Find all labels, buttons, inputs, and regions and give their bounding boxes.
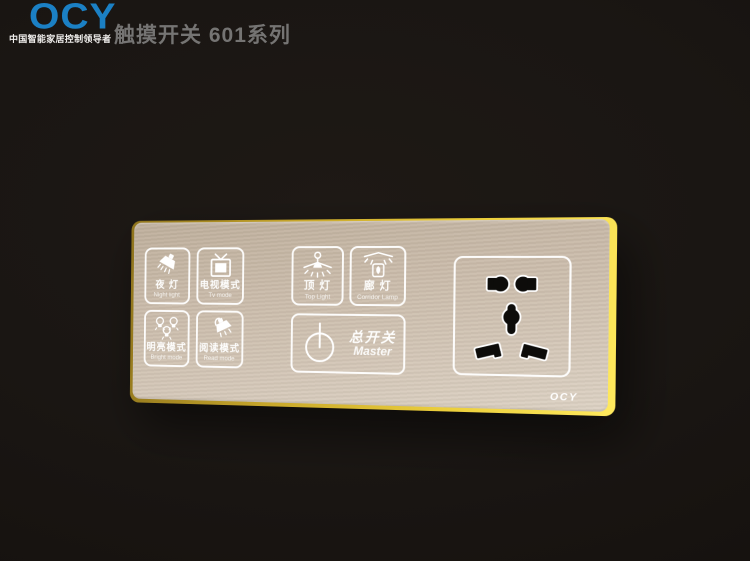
button-label-zh: 顶 灯 <box>304 280 331 293</box>
brand-tagline: 中国智能家居控制领导者 <box>9 32 111 45</box>
touch-button-master[interactable]: 总开关 Master <box>290 313 405 375</box>
master-labels: 总开关 Master <box>349 329 397 360</box>
button-label-zh: 电视模式 <box>200 280 241 291</box>
corridor-lamp-icon <box>358 248 398 280</box>
socket-holes-icon <box>457 260 568 373</box>
button-label-en: Night light <box>154 292 180 298</box>
switch-panel: 夜 灯 Night light 电视模式 Tv mode <box>130 217 618 416</box>
touch-button-tv-mode[interactable]: 电视模式 Tv mode <box>196 247 244 305</box>
button-label-zh: 夜 灯 <box>155 280 179 291</box>
panel-brand-mark: OCY <box>550 392 578 404</box>
touch-button-night-light[interactable]: 夜 灯 Night light <box>144 247 190 304</box>
power-socket <box>453 256 572 378</box>
reading-lamp-icon <box>204 312 236 343</box>
button-label-en: Top Light <box>305 294 330 301</box>
touch-button-top-light[interactable]: 顶 灯 Top Light <box>291 246 344 306</box>
ceiling-light-icon <box>298 248 337 280</box>
button-label-zh: 廊 灯 <box>364 280 392 293</box>
button-label-zh: 明亮模式 <box>147 342 187 354</box>
button-label-en: Read mode <box>204 355 235 362</box>
touch-button-read-mode[interactable]: 阅读模式 Read mode <box>196 310 244 368</box>
button-label-zh: 阅读模式 <box>199 343 240 355</box>
touch-button-bright-mode[interactable]: 明亮模式 Bright mode <box>144 310 190 367</box>
button-label-en: Master <box>353 345 391 360</box>
power-icon <box>299 321 340 365</box>
button-label-en: Bright mode <box>151 354 183 361</box>
product-showcase: OCY 中国智能家居控制领导者 触摸开关 601系列 <box>0 0 750 561</box>
bulbs-icon <box>151 312 182 343</box>
button-label-en: Tv mode <box>208 292 231 298</box>
tv-icon <box>204 249 236 280</box>
button-label-en: Corridor Lamp <box>357 294 398 301</box>
page-title: 触摸开关 601系列 <box>114 19 291 49</box>
panel-face: 夜 灯 Night light 电视模式 Tv mode <box>133 219 610 412</box>
night-lamp-icon <box>152 249 183 279</box>
touch-button-corridor-lamp[interactable]: 廊 灯 Corridor Lamp <box>349 246 406 307</box>
